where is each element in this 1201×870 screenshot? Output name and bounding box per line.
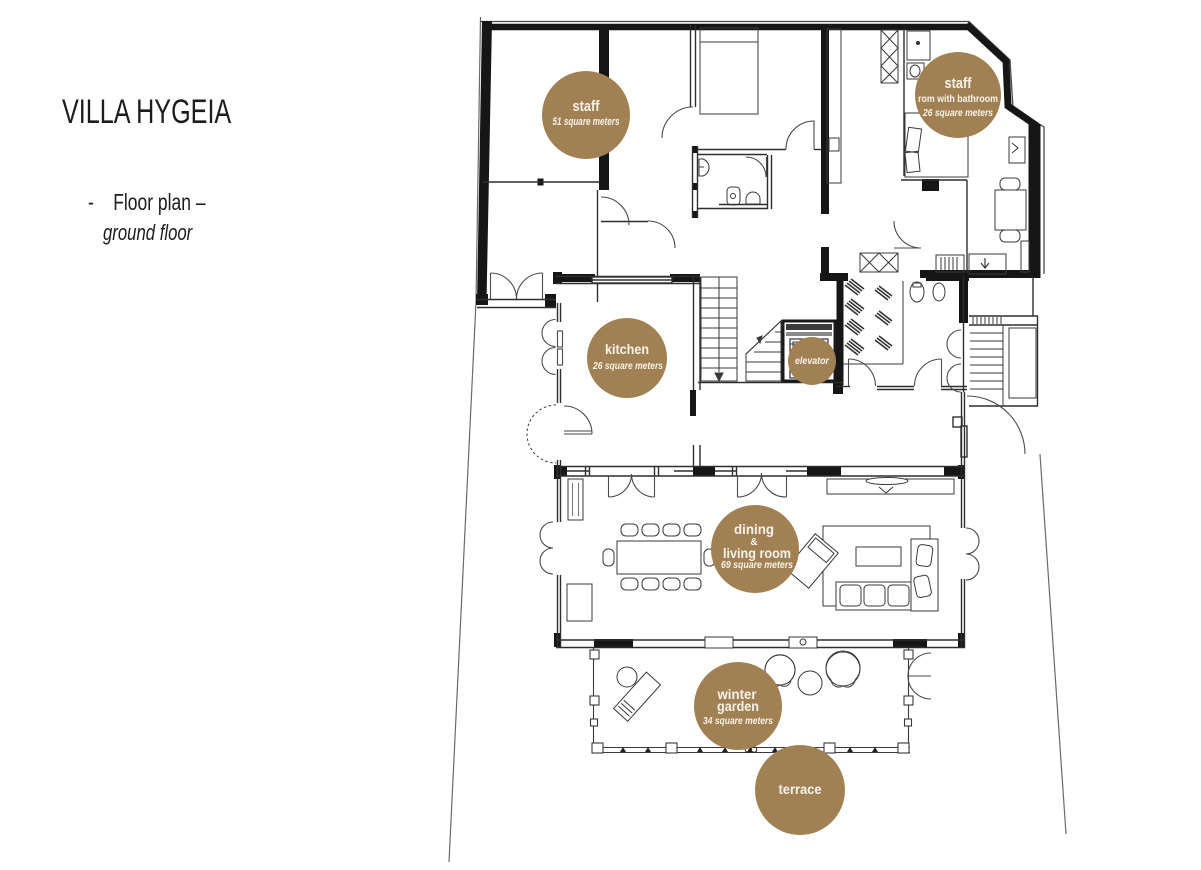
svg-text:kitchen: kitchen [605, 342, 649, 357]
svg-text:26 square meters: 26 square meters [922, 107, 993, 119]
svg-text:dining: dining [734, 521, 774, 537]
svg-text:terrace: terrace [779, 781, 822, 797]
svg-text:staff: staff [573, 98, 601, 115]
svg-text:rom with bathroom: rom with bathroom [918, 93, 998, 105]
svg-text:26 square meters: 26 square meters [592, 360, 663, 372]
svg-text:69 square meters: 69 square meters [721, 559, 793, 571]
svg-text:garden: garden [717, 698, 759, 714]
svg-text:staff: staff [945, 75, 973, 92]
svg-text:34 square meters: 34 square meters [703, 715, 773, 727]
svg-text:elevator: elevator [795, 356, 830, 367]
svg-text:51 square meters: 51 square meters [553, 116, 620, 128]
